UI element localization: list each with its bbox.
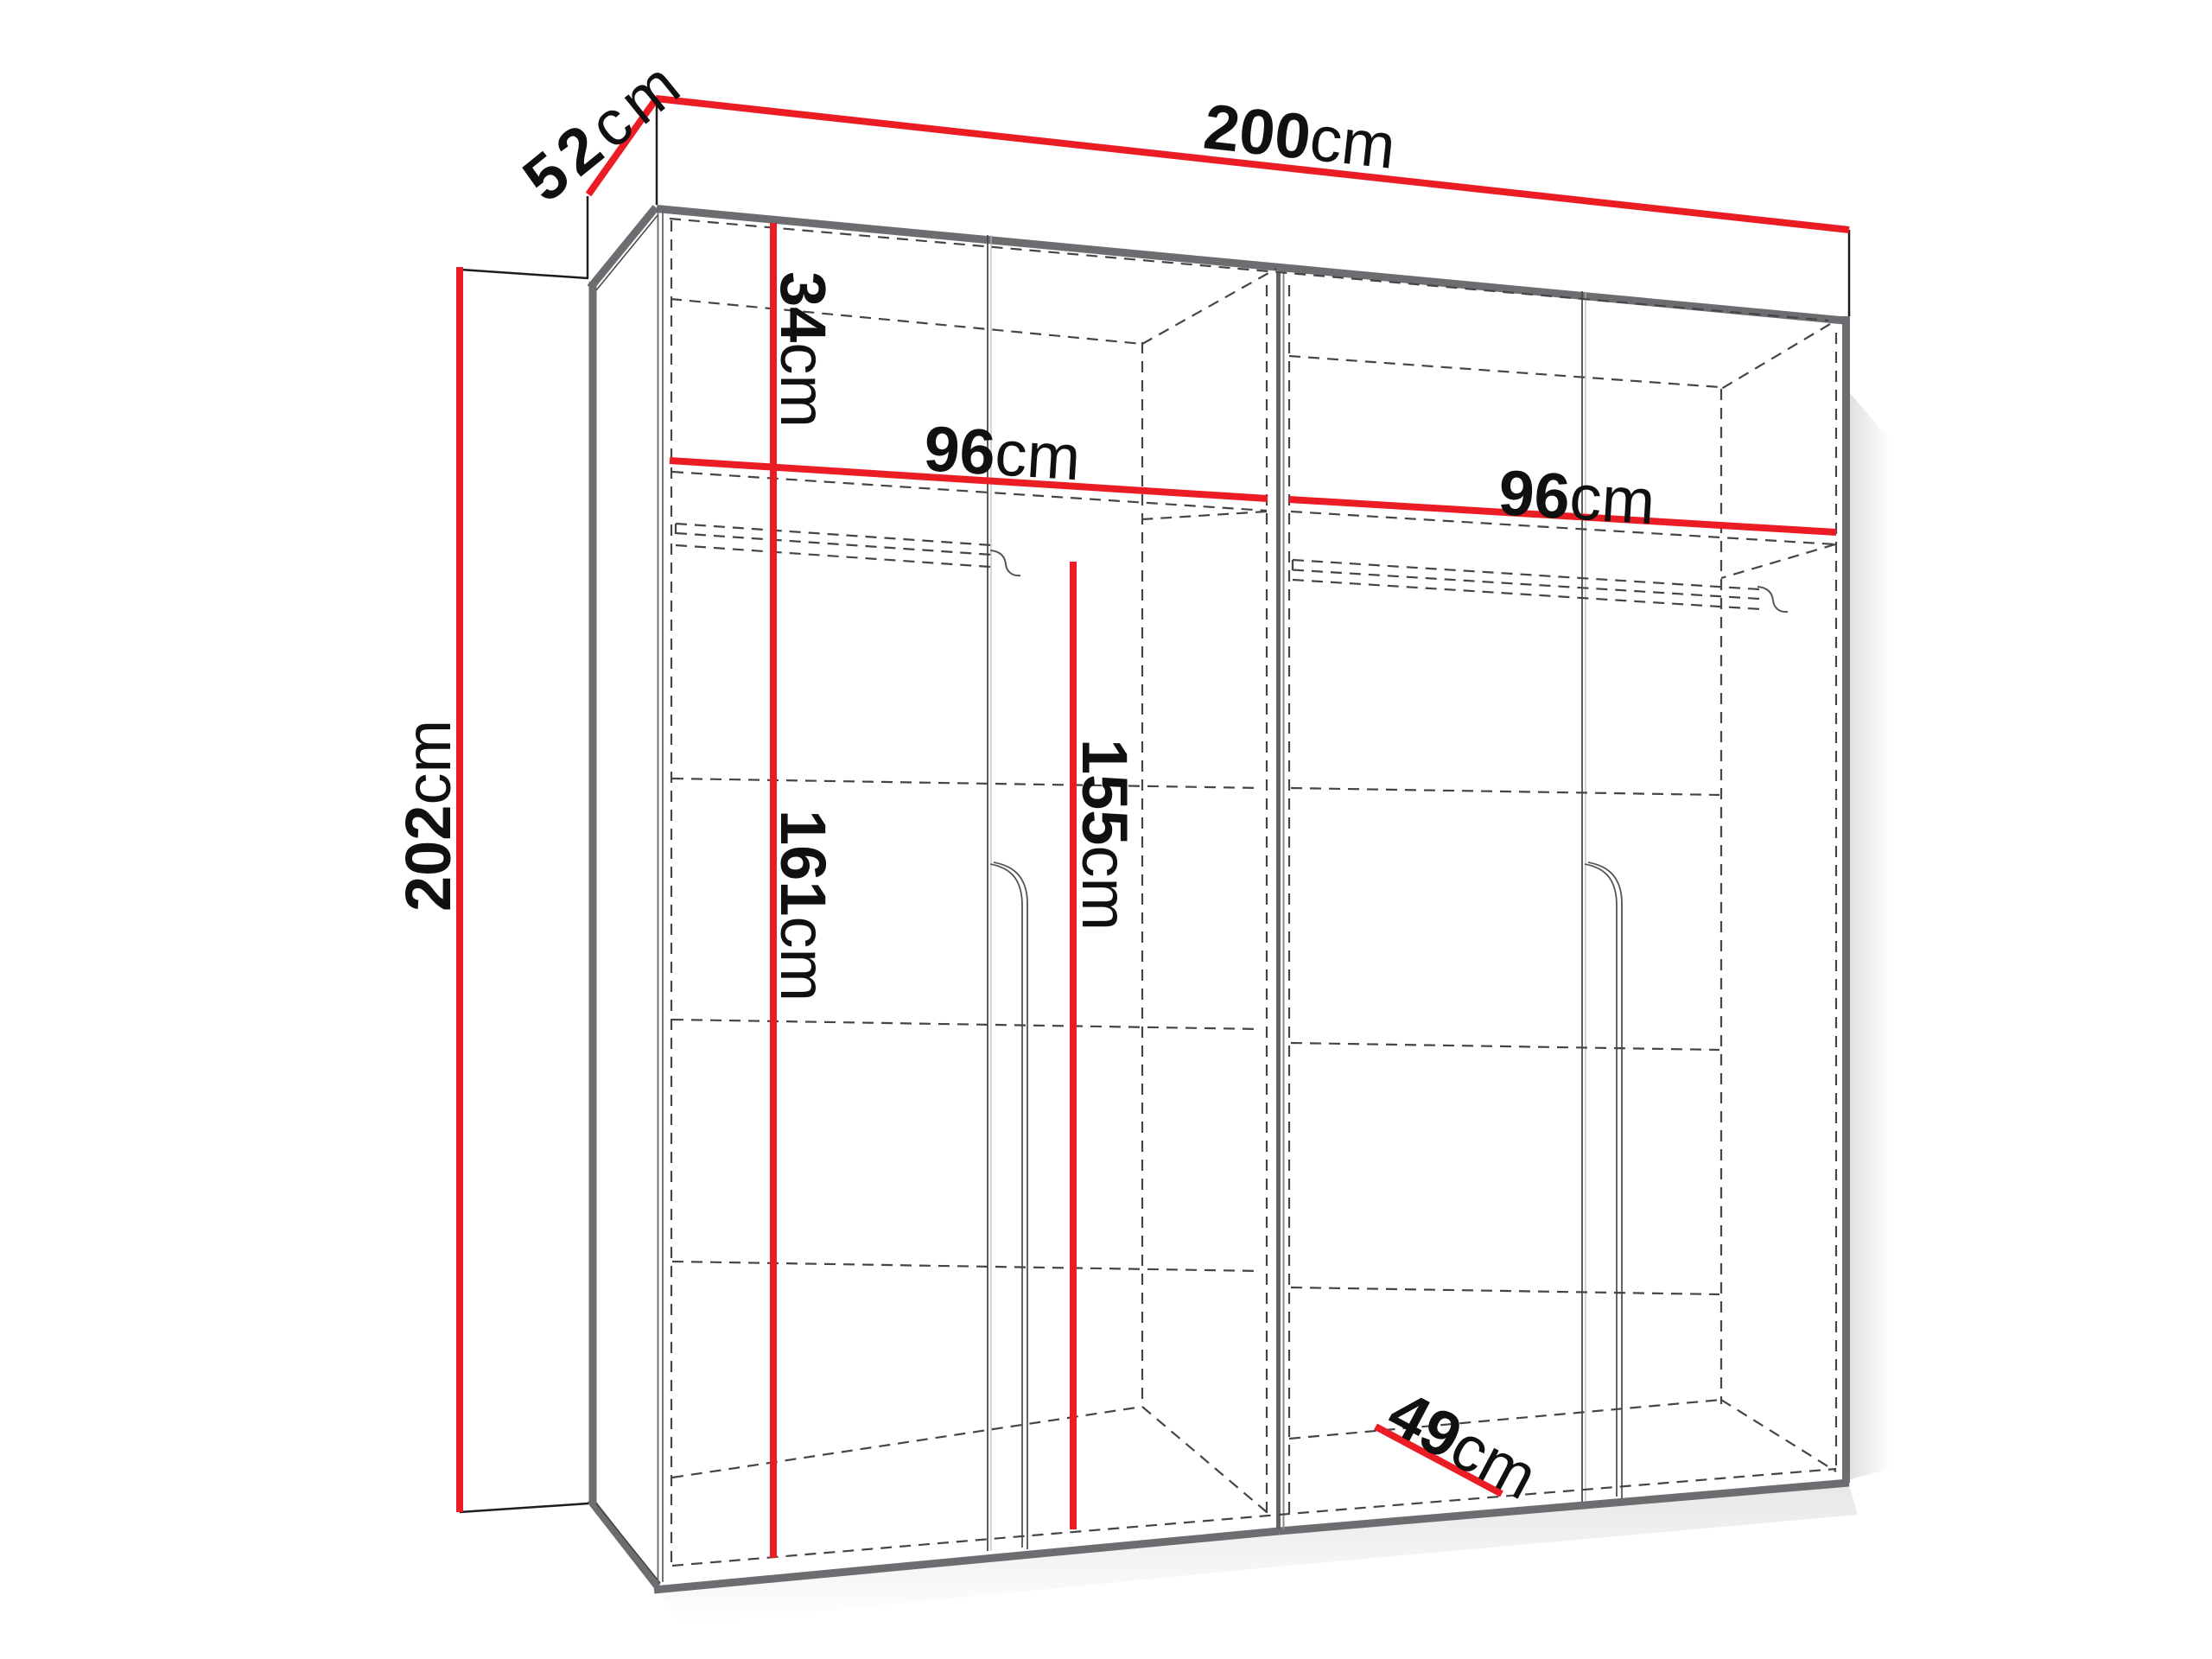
svg-text:96cm: 96cm — [922, 412, 1083, 493]
svg-text:202cm: 202cm — [392, 720, 464, 912]
svg-text:96cm: 96cm — [1497, 456, 1657, 537]
svg-text:155cm: 155cm — [1069, 739, 1141, 931]
svg-text:34cm: 34cm — [767, 271, 839, 428]
svg-text:161cm: 161cm — [767, 810, 839, 1001]
